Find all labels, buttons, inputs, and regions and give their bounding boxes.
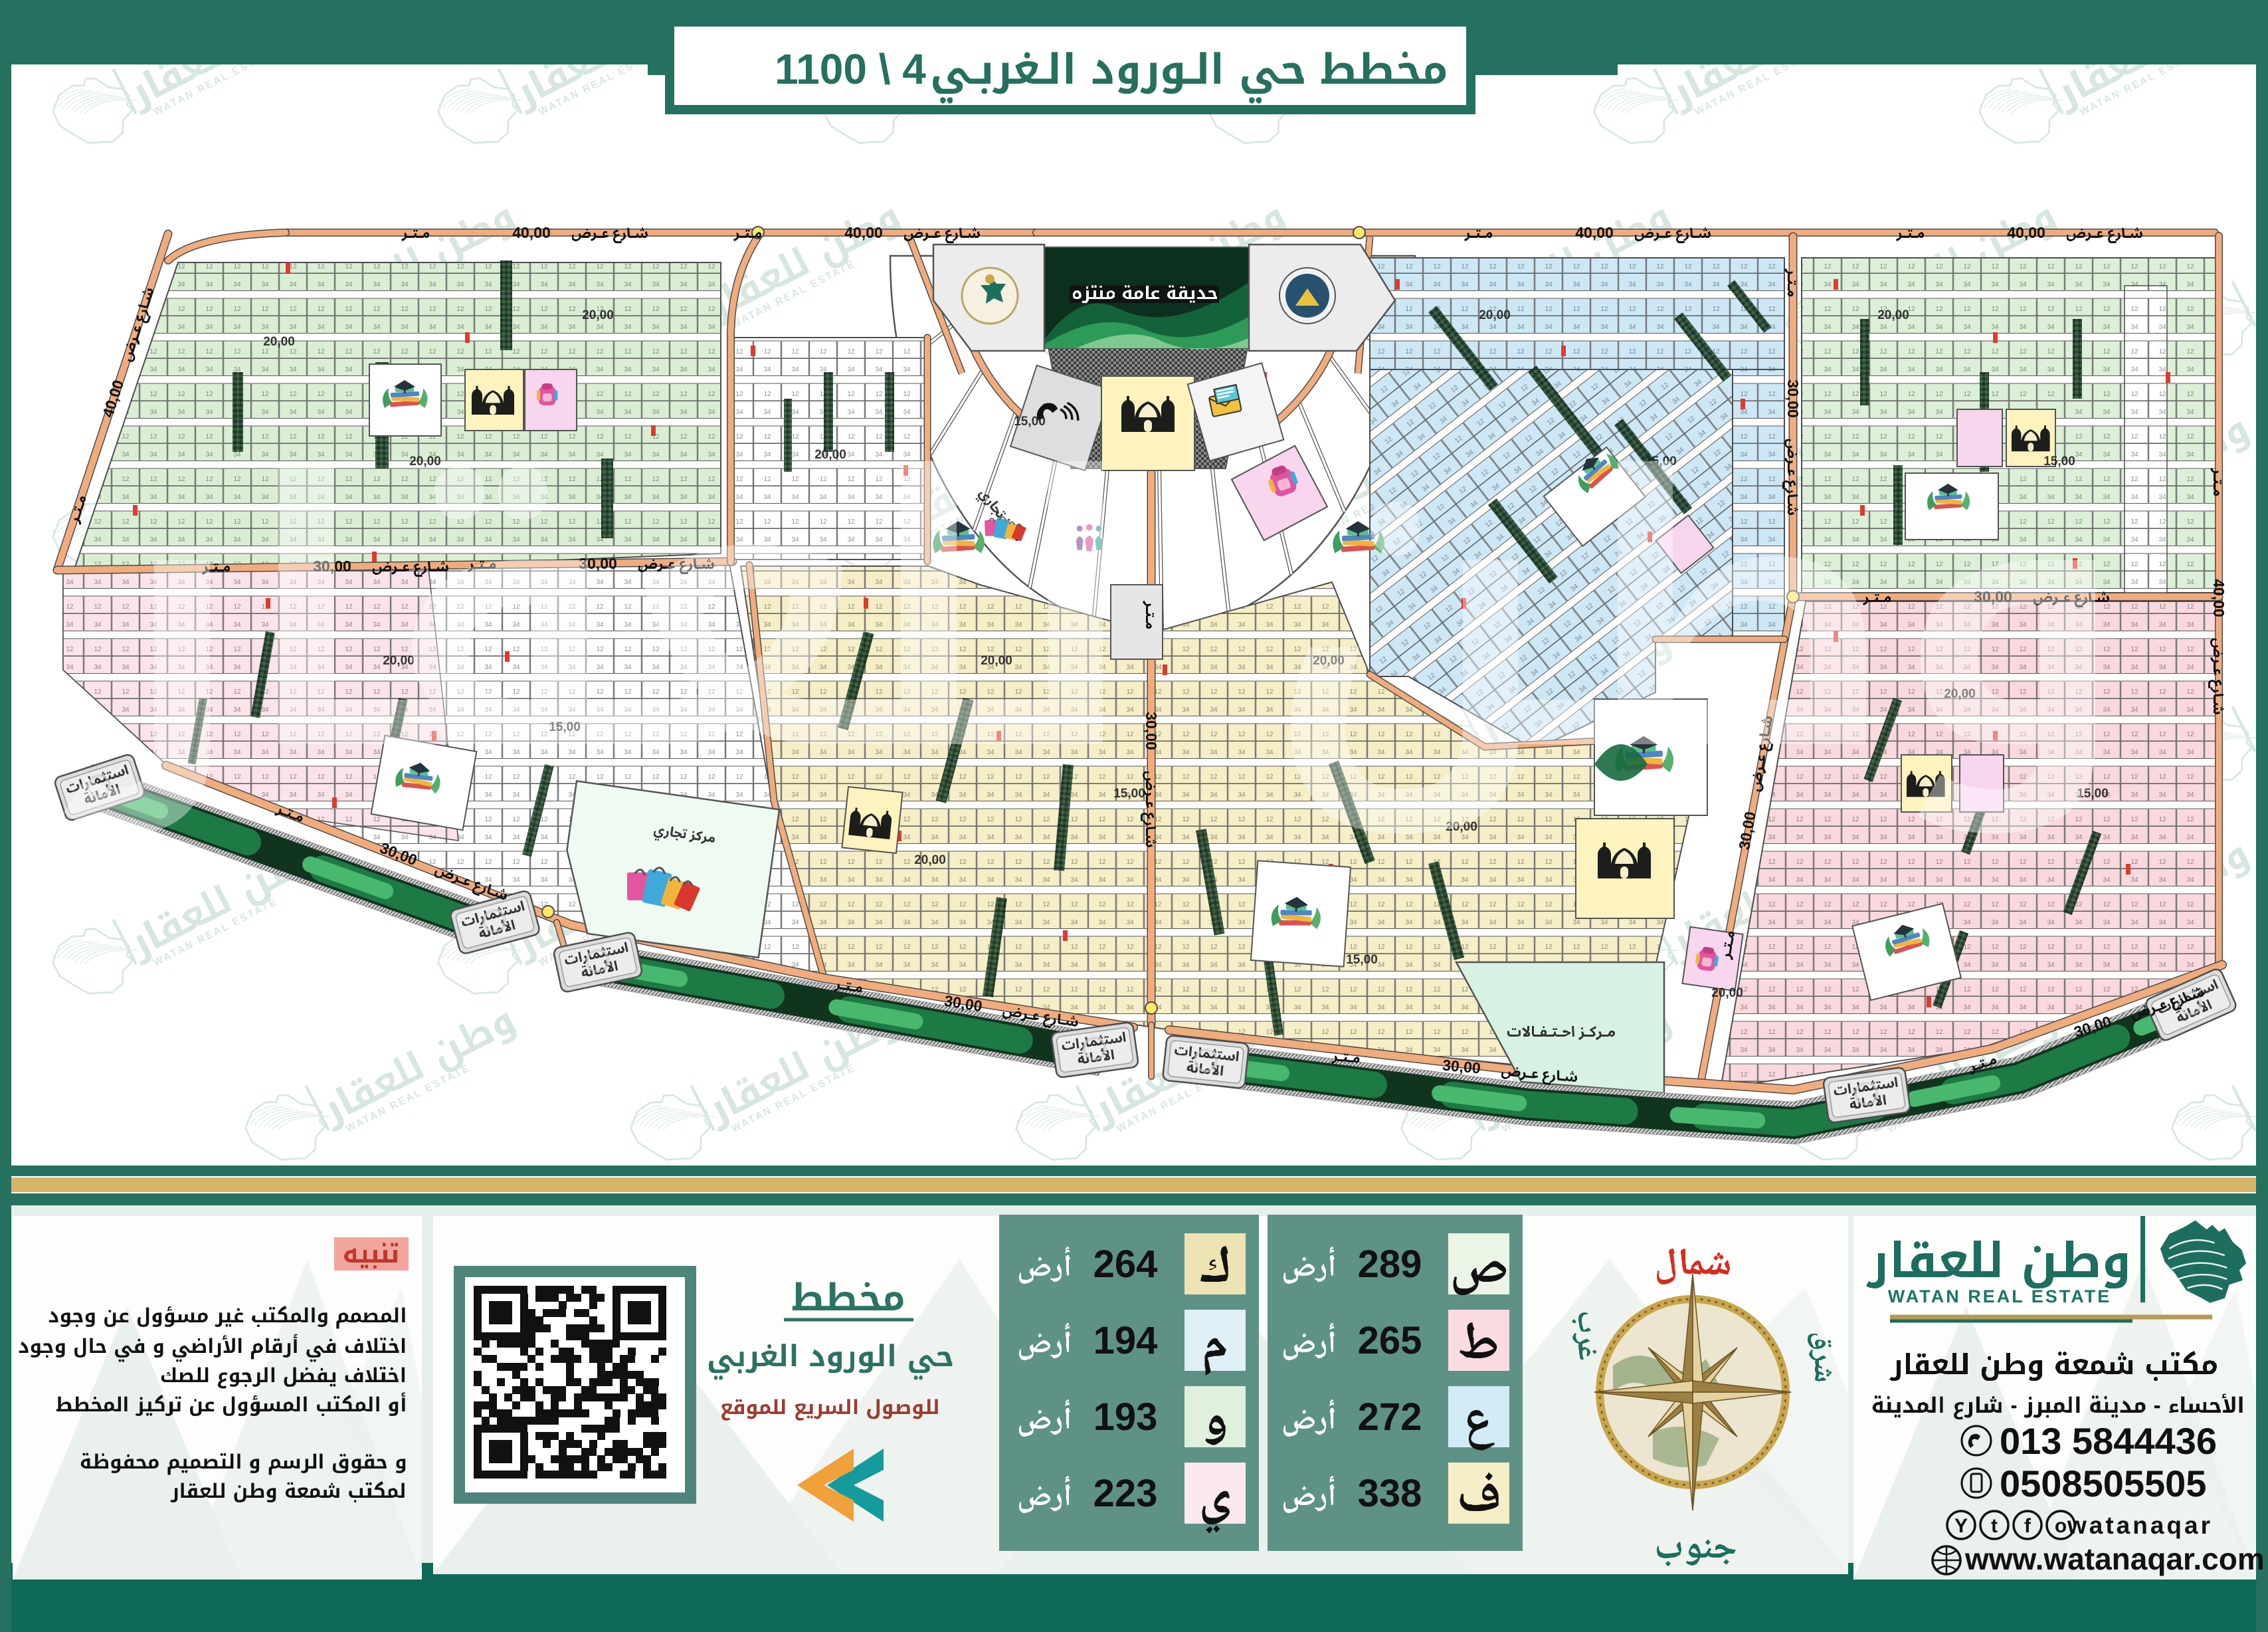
svg-text:WATAN REAL ESTATE: WATAN REAL ESTATE: [1888, 1286, 2112, 1306]
svg-text:20,00: 20,00: [1711, 986, 1743, 1000]
svg-text:watanaqar: watanaqar: [2067, 1512, 2213, 1539]
svg-text:30,00: 30,00: [1784, 379, 1802, 418]
svg-text:15,00: 15,00: [1113, 787, 1145, 801]
svg-text:0508505505: 0508505505: [2000, 1463, 2206, 1504]
svg-text:20,00: 20,00: [409, 455, 441, 468]
svg-text:15,00: 15,00: [2043, 455, 2075, 468]
svg-text:20,00: 20,00: [263, 335, 295, 349]
svg-text:338: 338: [1358, 1472, 1422, 1515]
svg-text:264: 264: [1093, 1243, 1158, 1286]
svg-text:30,00: 30,00: [1442, 1057, 1481, 1077]
svg-text:272: 272: [1358, 1395, 1422, 1439]
svg-text:193: 193: [1093, 1395, 1158, 1439]
svg-text:30,00: 30,00: [1143, 712, 1160, 750]
svg-text:265: 265: [1358, 1319, 1422, 1362]
svg-text:20,00: 20,00: [383, 654, 415, 668]
svg-text:40,00: 40,00: [512, 224, 551, 241]
svg-text:013 5844436: 013 5844436: [2000, 1420, 2217, 1462]
svg-text:1100 \ 4: 1100 \ 4: [775, 45, 926, 93]
svg-text:40,00: 40,00: [2210, 579, 2227, 617]
svg-text:15,00: 15,00: [1014, 415, 1046, 429]
svg-text:t: t: [1991, 1515, 1998, 1537]
svg-text:20,00: 20,00: [1479, 308, 1511, 322]
svg-text:20,00: 20,00: [1877, 308, 1909, 322]
svg-text:40,00: 40,00: [1575, 224, 1614, 241]
svg-text:www.watanaqar.com: www.watanaqar.com: [1964, 1542, 2265, 1576]
svg-text:Y: Y: [1954, 1515, 1968, 1537]
svg-text:194: 194: [1093, 1319, 1158, 1362]
svg-text:289: 289: [1358, 1243, 1422, 1286]
svg-text:20,00: 20,00: [981, 654, 1012, 668]
svg-text:f: f: [2024, 1515, 2032, 1537]
svg-text:15,00: 15,00: [1346, 953, 1378, 967]
svg-text:20,00: 20,00: [914, 853, 946, 867]
svg-text:223: 223: [1093, 1472, 1158, 1515]
svg-text:20,00: 20,00: [582, 308, 614, 322]
svg-text:20,00: 20,00: [814, 448, 846, 462]
svg-text:40,00: 40,00: [844, 224, 883, 241]
svg-text:o: o: [2055, 1515, 2067, 1537]
svg-text:40,00: 40,00: [2007, 224, 2045, 241]
